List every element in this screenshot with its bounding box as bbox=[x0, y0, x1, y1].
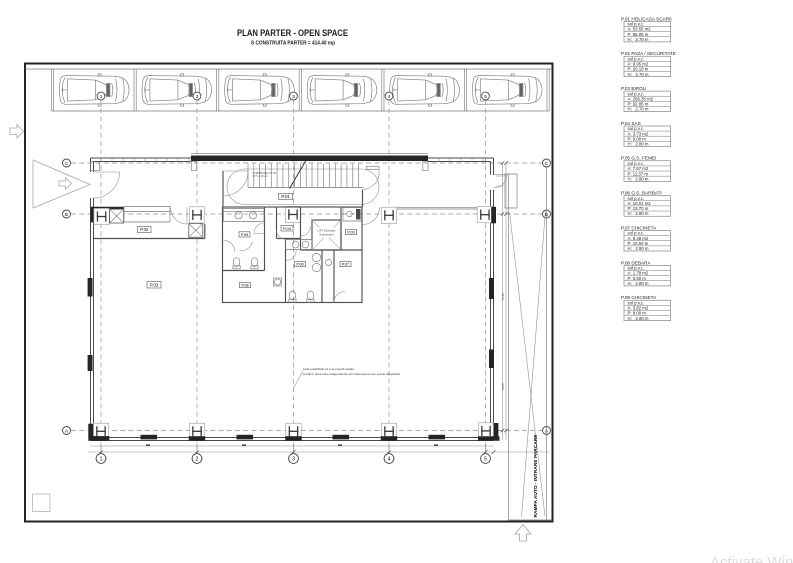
svg-text:1: 1 bbox=[100, 94, 103, 99]
svg-text:P.08 DEBARA: P.08 DEBARA bbox=[621, 260, 651, 265]
svg-text:1: 1 bbox=[100, 457, 103, 463]
svg-text:H: 2.80 m: H: 2.80 m bbox=[628, 281, 649, 286]
svg-text:H: 2.80 m: H: 2.80 m bbox=[628, 316, 649, 321]
svg-text:H: 2.70 m: H: 2.70 m bbox=[628, 37, 649, 42]
svg-text:4: 4 bbox=[388, 94, 391, 99]
svg-text:B: B bbox=[65, 212, 68, 217]
svg-text:5: 5 bbox=[484, 94, 487, 99]
svg-text:P.04 SAS: P.04 SAS bbox=[621, 121, 641, 126]
svg-text:Activate Windows: Activate Windows bbox=[710, 554, 793, 563]
svg-text:H: 2.70 m: H: 2.70 m bbox=[628, 72, 649, 77]
svg-text:5: 5 bbox=[484, 457, 487, 463]
svg-text:P.03: P.03 bbox=[150, 283, 159, 288]
svg-text:P.02: P.02 bbox=[140, 227, 149, 232]
svg-text:P.05 G.S. FEMEI: P.05 G.S. FEMEI bbox=[621, 156, 656, 161]
svg-text:P.07: P.07 bbox=[342, 263, 349, 267]
svg-text:P.05: P.05 bbox=[241, 233, 248, 237]
svg-text:2: 2 bbox=[196, 94, 199, 99]
svg-text:P.08: P.08 bbox=[241, 284, 248, 288]
svg-text:P.01: P.01 bbox=[281, 194, 290, 199]
svg-text:4: 4 bbox=[388, 457, 391, 463]
svg-text:8 persoane: 8 persoane bbox=[320, 233, 334, 237]
svg-text:H: 2.80 m: H: 2.80 m bbox=[628, 176, 649, 181]
svg-text:S CONSTRUITA PARTER = 414.40 m: S CONSTRUITA PARTER = 414.40 mp bbox=[251, 40, 335, 46]
svg-text:2740: 2740 bbox=[501, 293, 505, 300]
svg-text:2165: 2165 bbox=[501, 383, 505, 390]
svg-text:P.09: P.09 bbox=[347, 231, 354, 235]
svg-text:P.04: P.04 bbox=[283, 226, 291, 231]
svg-text:H: 2.80 m: H: 2.80 m bbox=[628, 142, 649, 147]
svg-text:H: 2.70 m: H: 2.70 m bbox=[628, 107, 649, 112]
svg-text:P.06: P.06 bbox=[296, 263, 303, 267]
svg-text:3: 3 bbox=[292, 94, 295, 99]
svg-text:H: 2.80 m: H: 2.80 m bbox=[628, 246, 649, 251]
svg-text:17.5 x 28 cm: 17.5 x 28 cm bbox=[253, 174, 269, 178]
svg-text:P.07 CHICINETA: P.07 CHICINETA bbox=[621, 225, 657, 230]
svg-text:P.03 BIROU: P.03 BIROU bbox=[621, 86, 647, 91]
svg-text:P.02 PAZA / SECURITATE: P.02 PAZA / SECURITATE bbox=[621, 51, 676, 56]
svg-text:Lista posibilitatii ca a se im: Lista posibilitatii ca a se imparti spat… bbox=[303, 367, 354, 371]
svg-text:P.06 G.S. BARBATI: P.06 G.S. BARBATI bbox=[621, 191, 662, 196]
svg-text:PLAN PARTER - OPEN SPACE: PLAN PARTER - OPEN SPACE bbox=[237, 28, 348, 38]
svg-text:RAMPA AUTO - INTRARE PARCARE: RAMPA AUTO - INTRARE PARCARE bbox=[533, 434, 538, 517]
svg-text:P.01 HOL/CASA SCARII: P.01 HOL/CASA SCARII bbox=[621, 16, 672, 21]
svg-text:2: 2 bbox=[196, 457, 199, 463]
svg-text:P.09 CHICINETA: P.09 CHICINETA bbox=[621, 295, 657, 300]
svg-text:H: 2.80 m: H: 2.80 m bbox=[628, 211, 649, 216]
svg-text:3: 3 bbox=[292, 457, 295, 463]
svg-text:imobil in doua zone independen: imobil in doua zone independente prin di… bbox=[303, 372, 400, 376]
